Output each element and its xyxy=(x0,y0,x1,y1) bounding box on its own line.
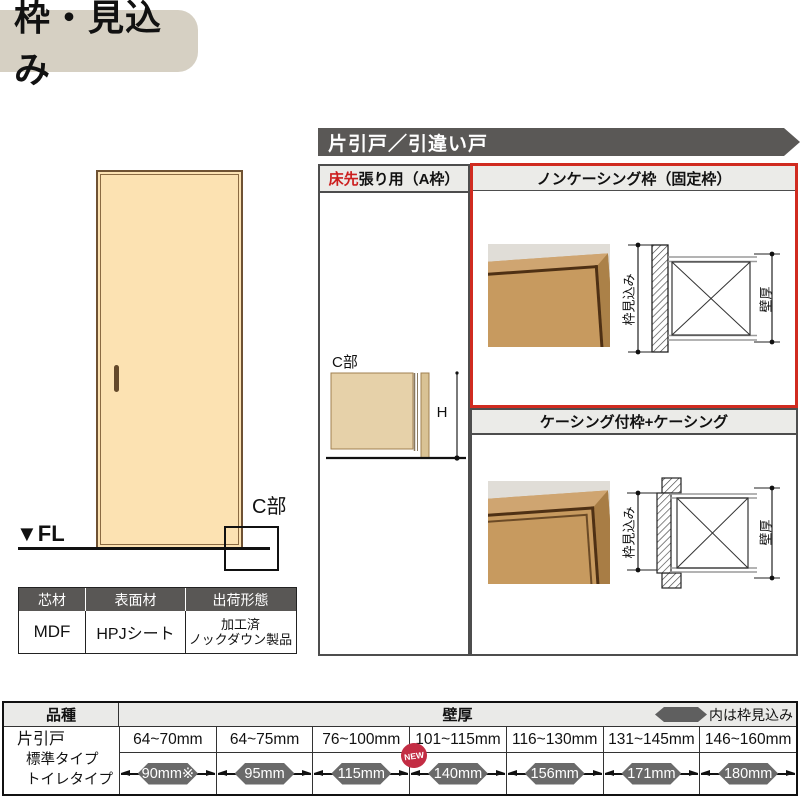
spec-table-value-row: MDF HPJシート 加工済 ノックダウン製品 xyxy=(19,611,296,653)
legend: 内は枠見込み xyxy=(655,703,793,726)
frame-depth-cell: 115mm xyxy=(312,753,409,794)
frame-depth-cell: 156mm xyxy=(506,753,603,794)
wall-range-cell: 146~160mm xyxy=(699,727,796,753)
non-casing-section-header: ノンケーシング枠（固定枠） xyxy=(473,166,795,191)
non-casing-door-photo xyxy=(488,244,610,347)
door-corner-wood xyxy=(488,490,610,584)
frame-depth-badge: 90mm※ xyxy=(138,763,198,785)
casing-cross-section-diagram: 枠見込み 壁厚 xyxy=(613,473,785,605)
door-panel-edge xyxy=(100,174,239,545)
frame-depth-badge: 140mm xyxy=(428,763,488,785)
door-handle xyxy=(114,365,119,392)
casing-door-photo xyxy=(488,481,610,584)
wall-thickness-header-label: 壁厚 xyxy=(442,704,472,725)
non-casing-section: ノンケーシング枠（固定枠） xyxy=(470,163,798,408)
frame-groove xyxy=(488,265,605,347)
spec-header-surface: 表面材 xyxy=(86,588,186,611)
casing-section-header: ケーシング付枠+ケーシング xyxy=(472,410,796,435)
frame-depth-badge: 115mm xyxy=(331,763,391,785)
page-title: 枠・見込み xyxy=(0,10,198,72)
wall-thickness-dimension-label: 壁厚 xyxy=(756,503,775,563)
product-line: 片引戸 xyxy=(4,730,119,750)
wall-range-cell: 131~145mm xyxy=(603,727,700,753)
wall-range-cell: 116~130mm xyxy=(506,727,603,753)
material-spec-table: 芯材 表面材 出荷形態 MDF HPJシート 加工済 ノックダウン製品 xyxy=(18,587,297,654)
height-dimension-label: H xyxy=(432,404,452,421)
wall-range-cell: 76~100mm xyxy=(312,727,409,753)
door-type-banner: 片引戸／引違い戸 xyxy=(318,128,800,156)
spec-value-surface: HPJシート xyxy=(86,611,186,653)
door-elevation-figure xyxy=(96,170,243,549)
casing-title: ケーシング付枠+ケーシング xyxy=(540,411,728,432)
frame-depth-cell: 90mm※ xyxy=(119,753,216,794)
floor-level-label: ▼FL xyxy=(16,521,65,547)
hexagon-legend-icon xyxy=(655,707,707,722)
casing-section: ケーシング付枠+ケーシング xyxy=(470,408,798,656)
frame-depth-cell: 95mm xyxy=(216,753,313,794)
non-casing-title: ノンケーシング枠（固定枠） xyxy=(537,168,732,189)
floor-first-highlight: 床先 xyxy=(329,168,359,189)
floor-first-section: 床先張り用（A枠） C部 H xyxy=(318,164,470,656)
frame-depth-badge: 95mm xyxy=(235,763,295,785)
frame-depth-badge: 156mm xyxy=(525,763,585,785)
product-line: トイレタイプ xyxy=(4,770,119,790)
product-line: 標準タイプ xyxy=(4,750,119,770)
wall-range-cell: 64~70mm xyxy=(119,727,216,753)
non-casing-cross-section-diagram: 枠見込み 壁厚 xyxy=(613,236,785,364)
wall-range-cell: 64~75mm xyxy=(216,727,313,753)
spec-value-core: MDF xyxy=(19,611,86,653)
frame-depth-cell: 171mm xyxy=(603,753,700,794)
spec-header-core: 芯材 xyxy=(19,588,86,611)
spec-table-header-row: 芯材 表面材 出荷形態 xyxy=(19,588,296,611)
frame-depth-badge: 180mm xyxy=(718,763,778,785)
floor-first-title-rest: 張り用（A枠） xyxy=(359,168,460,189)
frame-depth-dimension-label: 枠見込み xyxy=(619,493,638,573)
frame-depth-badge: 171mm xyxy=(621,763,681,785)
wall-thickness-dimension-label: 壁厚 xyxy=(756,270,775,330)
wall-thickness-table: 品種 壁厚 内は枠見込み 片引戸 標準タイプ トイレタイプ 64~70mm 64… xyxy=(2,701,798,796)
c-section-callout-label: C部 xyxy=(252,490,286,519)
door-corner-wood xyxy=(488,253,610,347)
casing-groove xyxy=(488,514,594,584)
product-type-cell: 片引戸 標準タイプ トイレタイプ xyxy=(4,727,119,794)
product-type-header: 品種 xyxy=(4,703,119,727)
legend-label: 内は枠見込み xyxy=(709,705,793,725)
frame-depth-dimension-label: 枠見込み xyxy=(619,260,638,340)
wall-thickness-header: 壁厚 内は枠見込み xyxy=(119,703,796,727)
frame-depth-cell: NEW 140mm xyxy=(409,753,506,794)
c-section-callout-box xyxy=(224,526,279,571)
floor-first-section-header: 床先張り用（A枠） xyxy=(320,166,468,193)
frame-depth-cell: 180mm xyxy=(699,753,796,794)
spec-value-shipping: 加工済 ノックダウン製品 xyxy=(186,611,295,653)
spec-header-shipping: 出荷形態 xyxy=(186,588,295,611)
door-type-banner-label: 片引戸／引違い戸 xyxy=(328,129,488,156)
